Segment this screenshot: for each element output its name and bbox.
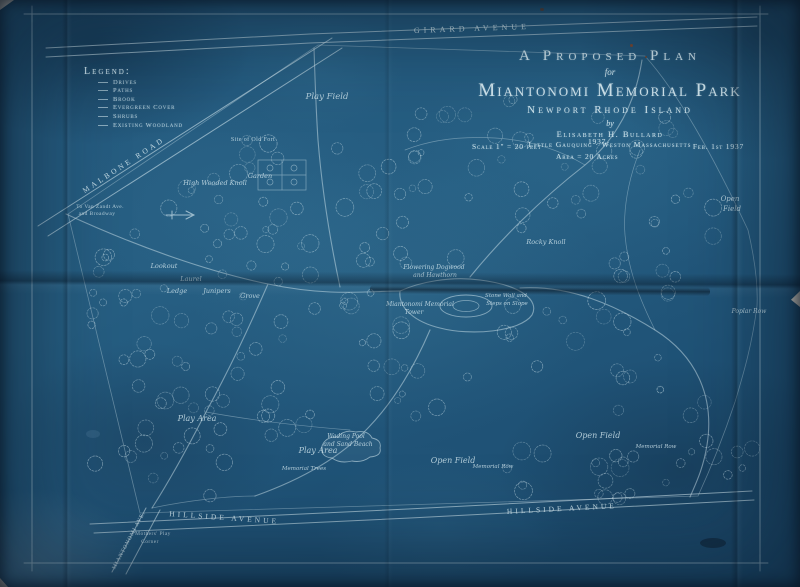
tree-symbol bbox=[182, 363, 190, 371]
tree-symbol bbox=[628, 451, 639, 462]
tree-symbol bbox=[130, 229, 140, 239]
tree-symbol bbox=[700, 434, 713, 447]
tree-symbol bbox=[360, 185, 374, 199]
tree-symbol bbox=[689, 449, 695, 455]
tree-symbol bbox=[561, 163, 568, 170]
tree-symbol bbox=[274, 315, 288, 329]
tree-symbol bbox=[671, 195, 679, 203]
legend-heading: Legend: bbox=[84, 66, 204, 77]
tree-symbol bbox=[239, 147, 255, 163]
tree-symbol bbox=[613, 405, 623, 415]
tree-symbol bbox=[225, 213, 238, 226]
tree-symbol bbox=[265, 429, 277, 441]
tree-symbol bbox=[410, 364, 425, 379]
scale-note: Scale 1" = 20 feet bbox=[472, 142, 542, 151]
tree-symbol bbox=[232, 327, 242, 337]
tree-symbol bbox=[620, 252, 629, 261]
legend: Legend: DrivesPathsBrookEvergreen CoverS… bbox=[84, 66, 204, 129]
map-label: Miantonomi Memorial bbox=[385, 301, 454, 308]
tree-symbol bbox=[135, 435, 152, 452]
tree-symbol bbox=[88, 456, 103, 471]
tree-symbol bbox=[88, 321, 95, 328]
tree-symbol bbox=[418, 180, 432, 194]
tree-symbol bbox=[698, 395, 712, 409]
tree-symbol bbox=[705, 199, 722, 216]
tree-symbol bbox=[394, 246, 408, 260]
tree-symbol bbox=[343, 298, 359, 314]
plan-title-line1: A Proposed Plan bbox=[470, 48, 750, 65]
map-label: High Wooded Knoll bbox=[182, 179, 247, 187]
tree-symbol bbox=[235, 227, 248, 240]
park-paths bbox=[152, 138, 655, 509]
map-label: Open Field bbox=[576, 431, 621, 440]
tree-symbol bbox=[173, 443, 184, 454]
tree-symbol bbox=[216, 454, 232, 470]
tree-symbol bbox=[706, 449, 722, 465]
tree-symbol bbox=[217, 395, 230, 408]
tree-symbol bbox=[119, 355, 129, 365]
tree-symbol bbox=[409, 185, 416, 192]
tree-symbol bbox=[332, 143, 343, 154]
tree-symbol bbox=[145, 349, 155, 359]
tree-symbol bbox=[684, 188, 694, 198]
map-label: Site of Old Fort bbox=[231, 136, 275, 143]
map-label: Play Area bbox=[298, 446, 338, 455]
tree-symbol bbox=[408, 151, 421, 164]
map-label: Lookout bbox=[150, 262, 178, 270]
tree-symbol bbox=[130, 351, 146, 367]
tree-symbol bbox=[257, 236, 274, 253]
legend-item: Drives bbox=[98, 79, 204, 86]
legend-item: Brook bbox=[98, 96, 204, 103]
tree-symbol bbox=[609, 258, 620, 269]
plan-title-line4: Newport Rhode Island bbox=[470, 104, 750, 116]
legend-symbol bbox=[98, 116, 108, 117]
tree-symbol bbox=[148, 473, 158, 483]
tree-symbol bbox=[360, 243, 370, 253]
legend-symbol bbox=[98, 125, 108, 126]
stain-spot bbox=[86, 430, 100, 438]
tree-symbol bbox=[172, 356, 182, 366]
map-label: Malbone Road bbox=[81, 135, 167, 195]
tree-symbol bbox=[173, 387, 189, 403]
tree-symbol bbox=[214, 423, 227, 436]
legend-symbol bbox=[98, 107, 108, 108]
tree-symbol bbox=[367, 334, 381, 348]
tree-symbol bbox=[247, 261, 256, 270]
stain-spot bbox=[700, 538, 726, 548]
tree-symbol bbox=[271, 152, 284, 165]
tree-symbol bbox=[395, 397, 401, 403]
tree-symbol bbox=[151, 307, 169, 325]
tree-symbol bbox=[279, 420, 296, 437]
tree-symbol bbox=[370, 387, 384, 401]
tree-symbol bbox=[559, 316, 567, 324]
tree-symbol bbox=[137, 337, 151, 351]
map-label: Wading Pool bbox=[327, 433, 365, 440]
tree-symbol bbox=[571, 195, 580, 204]
tree-symbol bbox=[548, 198, 559, 209]
tree-symbol bbox=[705, 228, 721, 244]
map-label: Memorial Row bbox=[472, 464, 514, 470]
vertical-fold-crease-left bbox=[62, 0, 72, 587]
tree-symbol bbox=[683, 408, 698, 423]
tree-symbol bbox=[100, 299, 107, 306]
tree-symbol bbox=[624, 370, 637, 383]
tree-symbol bbox=[270, 209, 287, 226]
tree-symbol bbox=[399, 391, 405, 397]
tree-symbol bbox=[663, 248, 670, 255]
tree-symbol bbox=[598, 473, 613, 488]
tree-symbol bbox=[657, 387, 663, 393]
tree-symbol bbox=[596, 309, 611, 324]
tree-symbol bbox=[655, 354, 662, 361]
tree-symbol bbox=[201, 224, 209, 232]
tree-symbol bbox=[415, 108, 427, 120]
tree-symbol bbox=[309, 303, 321, 315]
tree-symbol bbox=[206, 323, 217, 334]
tree-symbol bbox=[282, 263, 289, 270]
tree-symbol bbox=[394, 188, 405, 199]
stain-spot bbox=[540, 8, 544, 11]
tree-symbol bbox=[513, 442, 531, 460]
legend-symbol bbox=[98, 90, 108, 91]
tree-symbol bbox=[271, 381, 285, 395]
tree-symbol bbox=[401, 365, 408, 372]
map-label: Garden bbox=[248, 172, 272, 180]
tree-symbol bbox=[517, 224, 526, 233]
tree-symbol bbox=[249, 343, 262, 356]
map-label: Memorial Row bbox=[635, 444, 677, 450]
north-arrow-icon bbox=[166, 211, 194, 219]
map-label: Memorial Trees bbox=[281, 466, 326, 472]
map-label: Steps on Slope bbox=[486, 301, 528, 307]
tree-symbol bbox=[174, 313, 188, 327]
tree-symbol bbox=[206, 256, 213, 263]
tree-symbol bbox=[543, 307, 551, 315]
year-note: 1937 bbox=[588, 137, 606, 146]
tree-symbol bbox=[393, 317, 410, 334]
stain-spot bbox=[645, 56, 647, 58]
tree-symbol bbox=[465, 194, 472, 201]
tree-symbol bbox=[224, 229, 234, 239]
tree-symbol bbox=[649, 216, 659, 226]
tree-symbol bbox=[356, 253, 370, 267]
title-block: A Proposed Plan for Miantonomi Memorial … bbox=[470, 48, 750, 149]
tree-symbol bbox=[306, 410, 315, 419]
tree-symbol bbox=[230, 313, 242, 325]
tree-symbol bbox=[514, 182, 529, 197]
map-label: Play Area bbox=[177, 414, 217, 423]
blueprint-scan: Girard AvenueMalbone RoadHillside Avenue… bbox=[0, 0, 800, 587]
tree-symbol bbox=[301, 235, 319, 253]
map-label: Rocky Knoll bbox=[525, 238, 565, 246]
legend-symbol bbox=[98, 82, 108, 83]
tree-symbol bbox=[214, 195, 222, 203]
tree-symbol bbox=[279, 335, 287, 343]
tree-symbol bbox=[407, 128, 421, 142]
map-label: Tower bbox=[405, 309, 425, 316]
tree-symbol bbox=[268, 224, 278, 234]
tree-symbol bbox=[515, 208, 530, 223]
tree-symbol bbox=[393, 322, 410, 339]
tree-symbol bbox=[745, 441, 760, 456]
area-note: Area = 20 Acres bbox=[556, 152, 618, 161]
tree-symbol bbox=[223, 311, 235, 323]
tree-symbol bbox=[189, 403, 199, 413]
map-label: Hillside Avenue bbox=[169, 509, 279, 526]
tree-symbol bbox=[188, 187, 194, 193]
tree-symbol bbox=[583, 185, 599, 201]
tree-symbol bbox=[463, 373, 471, 381]
map-label: Play Field bbox=[305, 92, 349, 102]
plan-title-line3: Miantonomi Memorial Park bbox=[470, 80, 750, 102]
legend-item: Paths bbox=[98, 87, 204, 94]
map-label: Open Field bbox=[431, 456, 476, 465]
map-label: Corner bbox=[141, 539, 159, 545]
tree-symbol bbox=[676, 459, 685, 468]
tree-symbol bbox=[161, 452, 168, 459]
tree-symbol bbox=[618, 457, 628, 467]
tree-symbol bbox=[359, 165, 376, 182]
tree-symbol bbox=[636, 165, 645, 174]
legend-item: Evergreen Cover bbox=[98, 104, 204, 111]
tree-symbol bbox=[531, 361, 542, 372]
tree-symbol bbox=[663, 479, 670, 486]
vertical-fold-crease-center bbox=[384, 0, 393, 587]
map-label: To Van Zandt Ave. bbox=[76, 204, 124, 210]
legend-items: DrivesPathsBrookEvergreen CoverShrubsExi… bbox=[84, 79, 204, 129]
plan-title-line2: for bbox=[470, 67, 750, 77]
byline: by bbox=[470, 119, 750, 128]
stain-spot bbox=[630, 44, 633, 47]
map-label: Mothers' Play bbox=[135, 531, 171, 537]
tree-symbol bbox=[95, 249, 112, 266]
tree-symbol bbox=[567, 332, 585, 350]
legend-symbol bbox=[98, 99, 108, 100]
tree-symbol bbox=[138, 420, 154, 436]
legend-item: Shrubs bbox=[98, 113, 204, 120]
tree-symbol bbox=[367, 184, 382, 199]
tree-symbol bbox=[204, 490, 216, 502]
tree-symbol bbox=[259, 197, 268, 206]
tree-symbol bbox=[368, 360, 379, 371]
tree-symbol bbox=[336, 199, 354, 217]
tree-symbol bbox=[409, 150, 421, 162]
tree-symbol bbox=[161, 200, 177, 216]
tree-symbol bbox=[132, 380, 145, 393]
tree-symbol bbox=[515, 482, 533, 500]
vertical-fold-crease-right bbox=[731, 0, 743, 587]
tree-symbol bbox=[534, 445, 551, 462]
tree-symbol bbox=[206, 445, 214, 453]
tree-symbol bbox=[291, 202, 304, 215]
legend-item: Existing Woodland bbox=[98, 122, 204, 129]
map-label: and Broadway bbox=[79, 211, 116, 217]
tree-symbol bbox=[366, 257, 375, 266]
tree-symbol bbox=[411, 411, 421, 421]
map-label: Flowering Dogwood bbox=[402, 264, 464, 271]
tree-symbol bbox=[213, 240, 221, 248]
tree-symbol bbox=[614, 313, 631, 330]
tree-symbol bbox=[237, 352, 245, 360]
tree-symbol bbox=[429, 399, 446, 416]
tree-symbol bbox=[577, 209, 586, 218]
map-label: Girard Avenue bbox=[414, 22, 530, 35]
tree-symbol bbox=[231, 367, 244, 380]
scale-row: Scale 1" = 20 feet 1937 Feb. 1st 1937 Ar… bbox=[470, 136, 750, 162]
tree-symbol bbox=[359, 340, 365, 346]
tree-symbol bbox=[184, 428, 200, 444]
tree-symbol bbox=[397, 216, 409, 228]
